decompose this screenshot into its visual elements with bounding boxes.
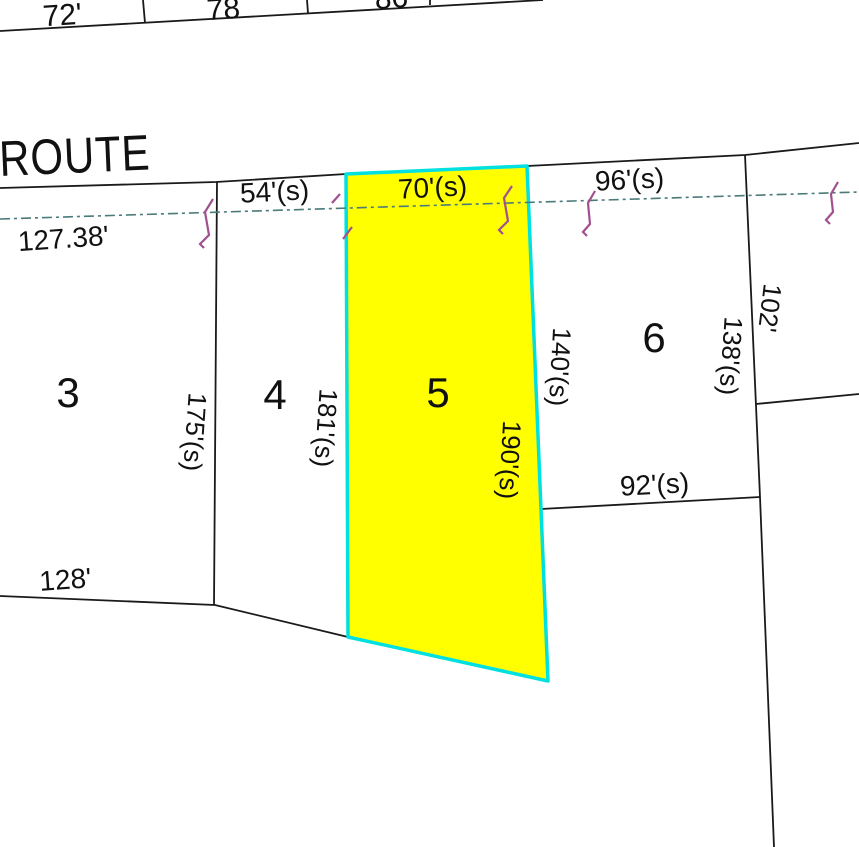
across-street-lot-divider [307,0,308,13]
lot-5-number: 5 [426,369,449,416]
lot4-frontage-dim: 54'(s) [239,174,310,209]
lot-4-number: 4 [263,371,286,418]
lot3-lot4-depth-dim: 175'(s) [177,392,212,473]
lot6-west-depth-dim: 140'(s) [543,327,577,407]
across-street-parcels: 72' 78 86 [0,0,543,33]
across-street-dim: 86 [374,0,410,16]
east-parcel-depth-dim: 102' [752,282,788,334]
lot6-frontage-dim: 96'(s) [594,162,665,197]
across-street-dim: 72' [42,0,83,33]
lot-6-number: 6 [642,314,665,361]
east-parcel[interactable] [745,143,859,404]
route-street-label: ROUTE [0,124,151,187]
lot6-east-depth-dim: 138'(s) [713,316,748,397]
lot4-lot5-depth-dim: 181'(s) [308,388,343,469]
lot3-frontage-dim: 127.38' [17,220,110,257]
lot5-frontage-dim: 70'(s) [397,170,468,205]
lot3-rear-dim: 128' [38,562,92,597]
lot-3-number: 3 [56,369,79,416]
parcel-map-canvas: 72' 78 86 ROUTE 3 4 5 6 127.38' 54'(s) 7… [0,0,859,847]
lot5-east-depth-dim: 190'(s) [493,420,527,500]
across-street-dim: 78 [206,0,242,27]
lot6-rear-dim: 92'(s) [619,467,690,502]
across-street-lot-divider [143,0,145,23]
